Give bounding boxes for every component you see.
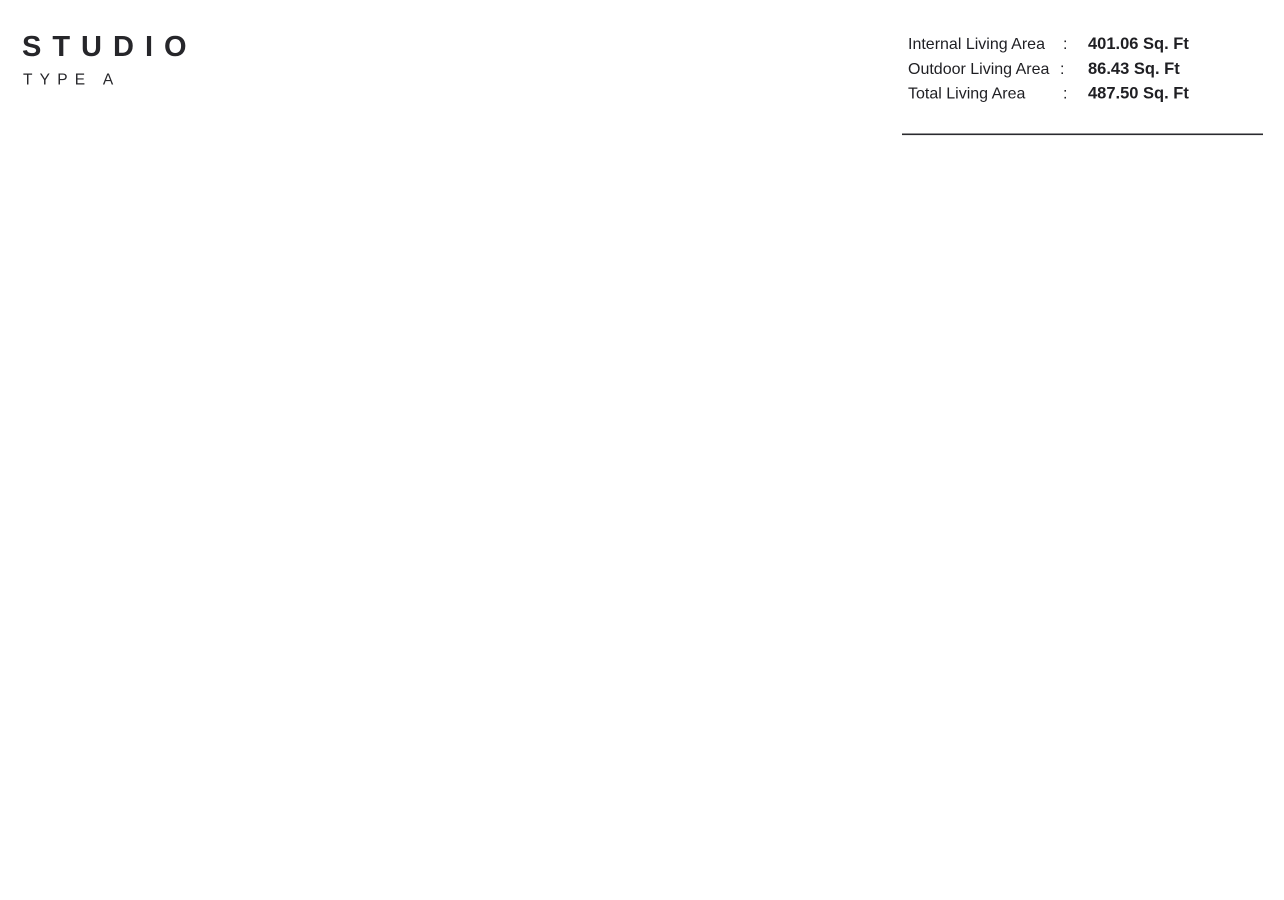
svg-text::: : (1060, 61, 1064, 78)
svg-text::: : (1063, 36, 1067, 53)
svg-text:TYPE A: TYPE A (23, 72, 120, 89)
svg-text:401.06 Sq. Ft: 401.06 Sq. Ft (1088, 35, 1189, 53)
svg-text:STUDIO: STUDIO (22, 31, 198, 63)
svg-text::: : (1063, 86, 1067, 103)
svg-text:Internal Living Area: Internal Living Area (908, 36, 1045, 53)
svg-text:Outdoor Living Area: Outdoor Living Area (908, 61, 1050, 78)
svg-text:86.43 Sq. Ft: 86.43 Sq. Ft (1088, 60, 1180, 78)
svg-text:Total Living Area: Total Living Area (908, 86, 1026, 103)
svg-text:487.50 Sq. Ft: 487.50 Sq. Ft (1088, 85, 1189, 103)
